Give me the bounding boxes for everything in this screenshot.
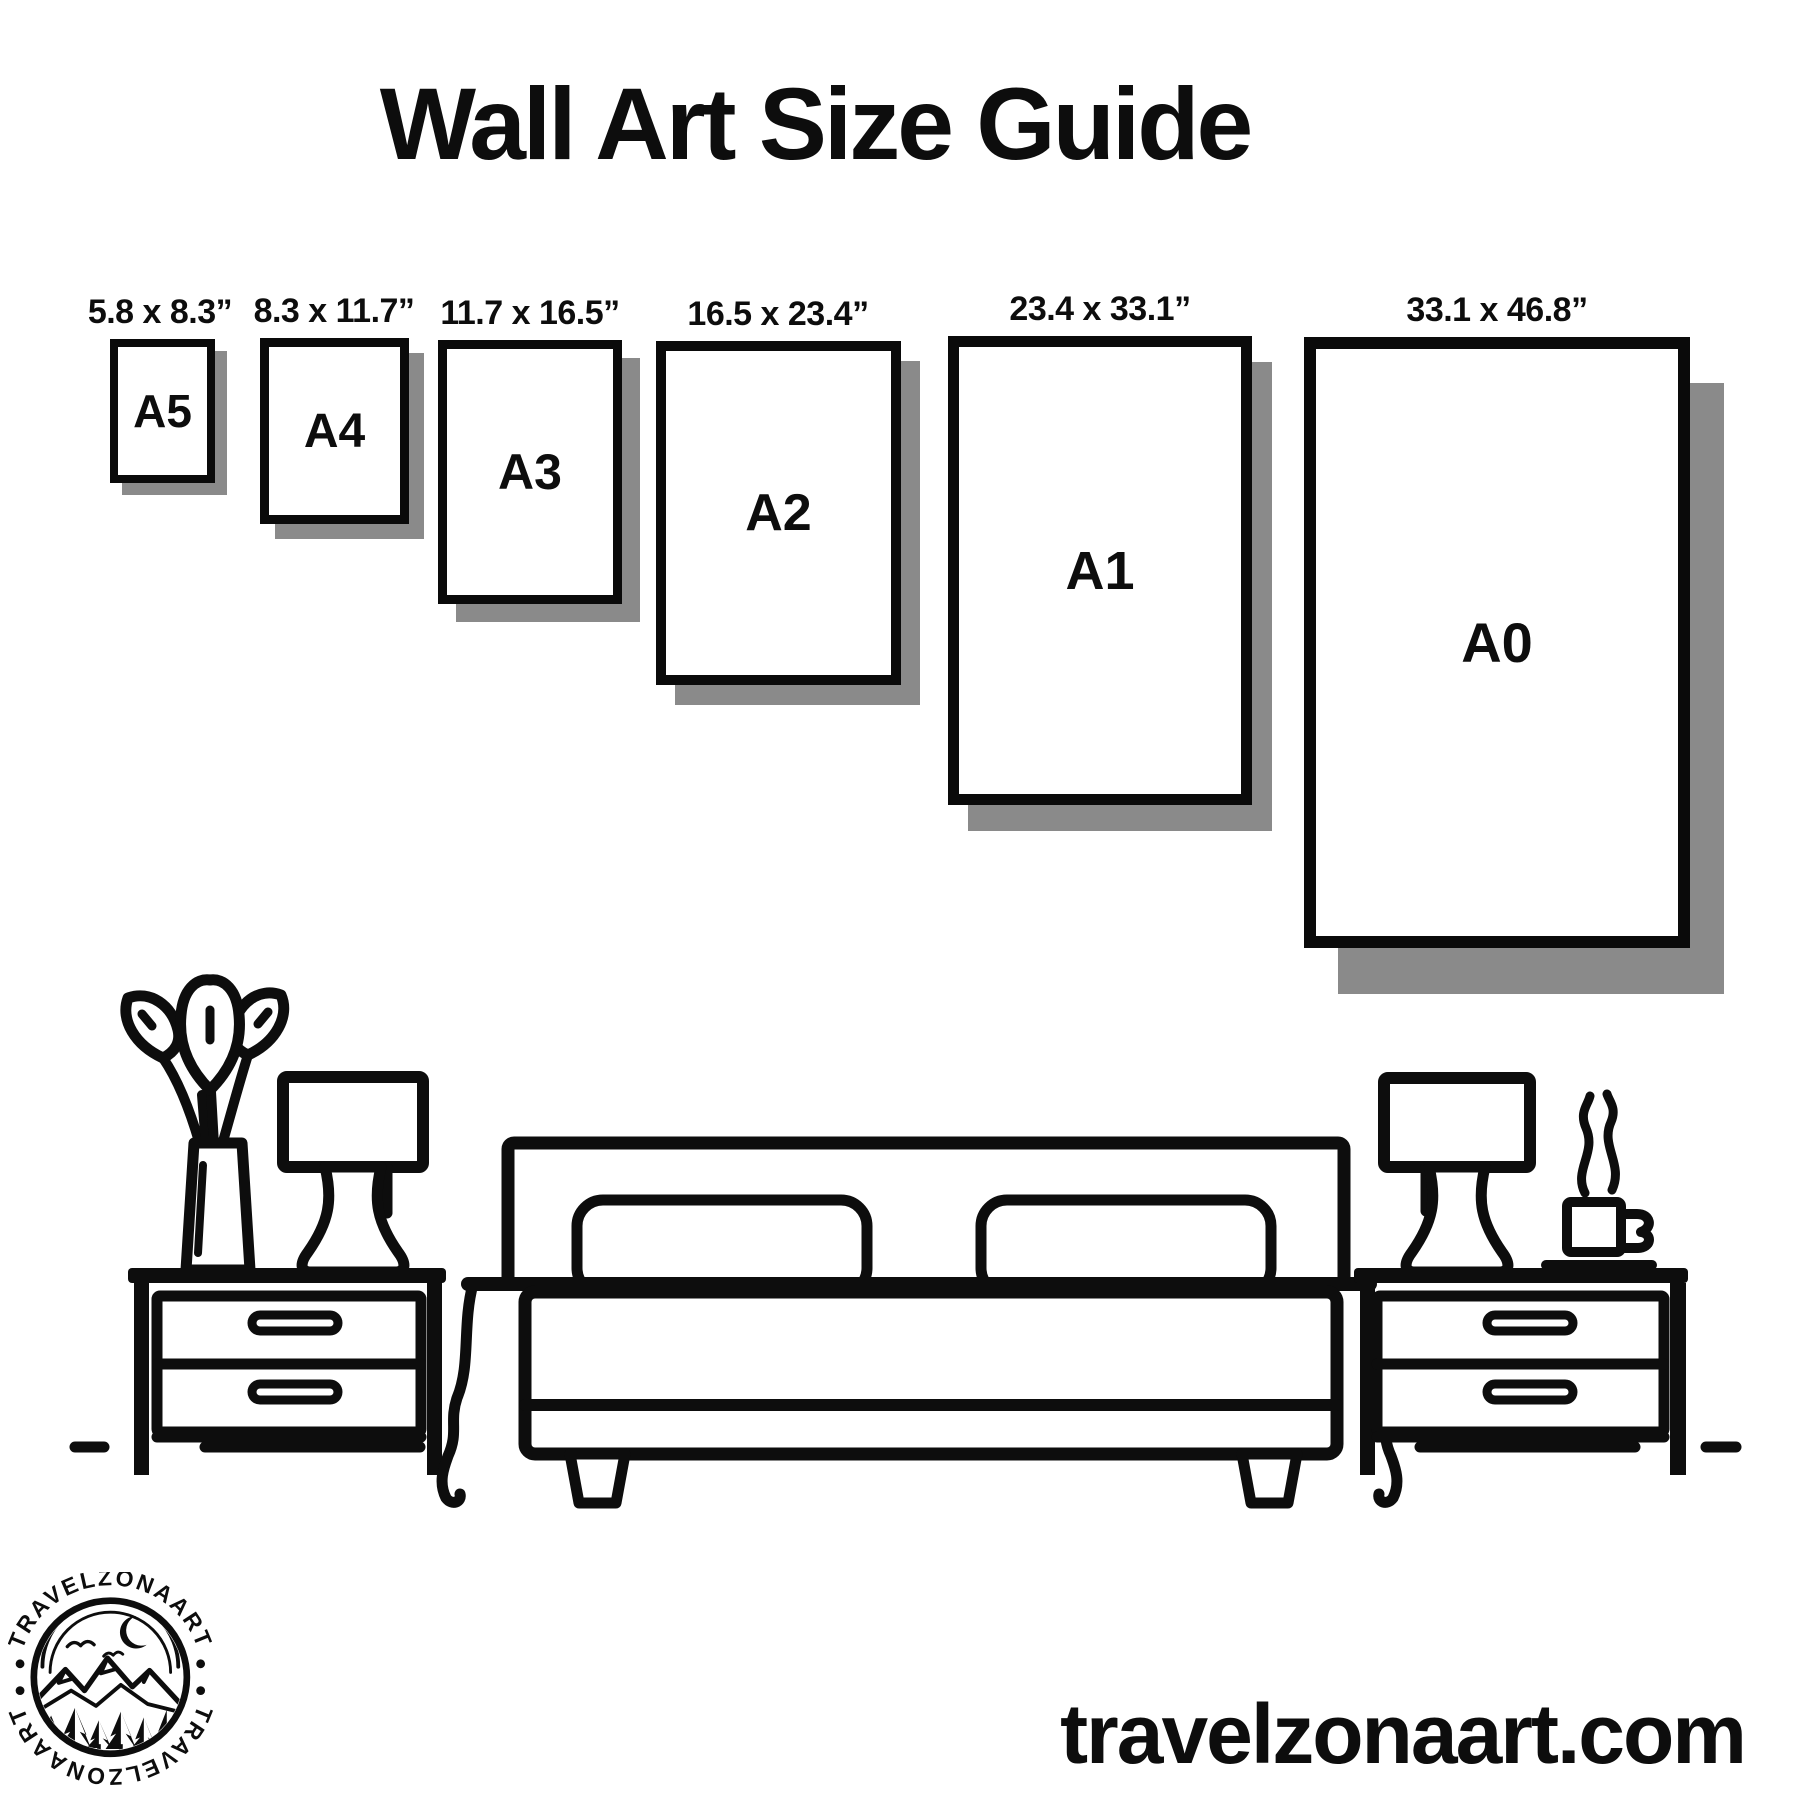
dimension-label-a5: 5.8 x 8.3” xyxy=(88,293,232,332)
plant-icon xyxy=(126,980,284,1270)
separator-dot-icon xyxy=(16,1659,25,1668)
bird-icon xyxy=(104,1652,123,1656)
size-frame-a3: A3 xyxy=(438,340,622,604)
table-lamp-left-icon xyxy=(283,1077,423,1272)
mountains-icon xyxy=(37,1685,179,1712)
separator-dot-icon xyxy=(196,1686,205,1695)
bed-icon xyxy=(442,1143,1397,1505)
size-frame-a5: A5 xyxy=(110,339,215,483)
size-frame-a5-label: A5 xyxy=(133,384,192,438)
size-frame-a4: A4 xyxy=(260,338,409,524)
mountains-icon xyxy=(59,1658,150,1683)
bird-icon xyxy=(67,1642,94,1647)
size-frame-a0: A0 xyxy=(1304,337,1690,948)
page-title: Wall Art Size Guide xyxy=(0,66,1630,183)
size-frame-a1-label: A1 xyxy=(1065,540,1134,602)
dimension-label-a3: 11.7 x 16.5” xyxy=(440,294,619,333)
size-frame-a1: A1 xyxy=(948,336,1252,805)
size-frame-a3-label: A3 xyxy=(498,443,562,501)
separator-dot-icon xyxy=(196,1659,205,1668)
size-frame-a0-label: A0 xyxy=(1461,610,1533,675)
size-guide-poster: Wall Art Size Guide 5.8 x 8.3” 8.3 x 11.… xyxy=(0,0,1800,1800)
dimension-label-a2: 16.5 x 23.4” xyxy=(687,295,868,334)
size-frame-a2: A2 xyxy=(656,341,901,685)
size-frame-a4-label: A4 xyxy=(304,404,365,459)
table-lamp-right-icon xyxy=(1384,1078,1530,1272)
sunrise-arc-icon xyxy=(42,1599,178,1667)
separator-dot-icon xyxy=(16,1686,25,1695)
website-text: travelzonaart.com xyxy=(1060,1686,1745,1783)
dimension-label-a1: 23.4 x 33.1” xyxy=(1009,290,1190,329)
size-frame-a2-label: A2 xyxy=(745,483,811,543)
steam-icon xyxy=(1582,1096,1590,1193)
pine-trees-icon xyxy=(38,1708,182,1751)
brand-logo-badge: TRAVELZONAART TRAVELZONAART xyxy=(8,1572,228,1792)
dimension-label-a0: 33.1 x 46.8” xyxy=(1406,291,1587,330)
steam-icon xyxy=(1607,1094,1615,1190)
coffee-cup-icon xyxy=(1546,1094,1652,1265)
bedroom-scene xyxy=(0,950,1800,1570)
dimension-label-a4: 8.3 x 11.7” xyxy=(254,292,415,331)
